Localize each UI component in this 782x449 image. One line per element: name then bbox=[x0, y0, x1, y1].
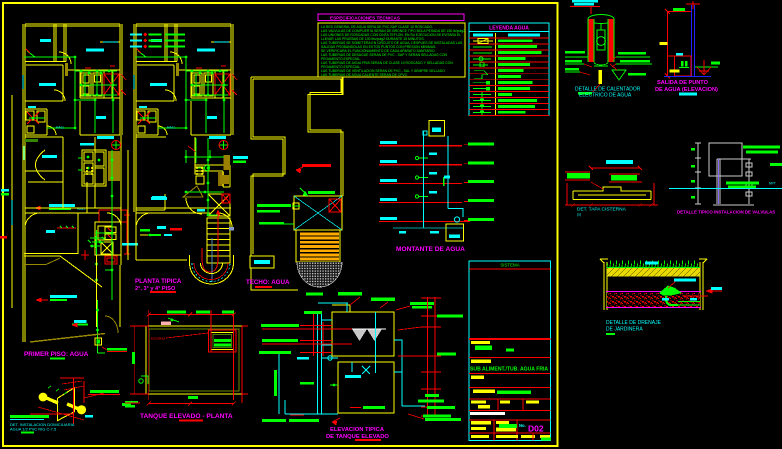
svg-text:NPT: NPT bbox=[769, 182, 776, 186]
svg-text:DE JARDINERA: DE JARDINERA bbox=[606, 327, 643, 333]
svg-text:DET. TAPA CISTERNA: DET. TAPA CISTERNA bbox=[577, 207, 627, 213]
svg-text:LAS TUBERIAS DE AGUA CALIENTE: LAS TUBERIAS DE AGUA CALIENTE SERAN DE C… bbox=[321, 73, 408, 77]
svg-text:ELEVACION TIPICA: ELEVACION TIPICA bbox=[330, 427, 385, 433]
svg-text:D02: D02 bbox=[528, 424, 544, 434]
svg-text:(s): (s) bbox=[577, 213, 581, 217]
svg-text:ESPECIFICACIONES TECNICAS: ESPECIFICACIONES TECNICAS bbox=[330, 15, 400, 20]
svg-text:AGUA 1/2 PVC RIG C-7.5: AGUA 1/2 PVC RIG C-7.5 bbox=[10, 427, 57, 432]
svg-text:TECHO: AGUA: TECHO: AGUA bbox=[246, 279, 290, 286]
svg-text:PLANTA TIPICA: PLANTA TIPICA bbox=[135, 278, 182, 285]
svg-text:PRIMER PISO: AGUA: PRIMER PISO: AGUA bbox=[24, 351, 89, 358]
svg-text:DETALLE TIPICO INSTALACION DE: DETALLE TIPICO INSTALACION DE VALVULAS bbox=[677, 210, 775, 215]
svg-text:SUB ALIMENT./TUB. AGUA FRIA: SUB ALIMENT./TUB. AGUA FRIA bbox=[470, 367, 548, 373]
svg-text:ELECTRICO DE AGUA: ELECTRICO DE AGUA bbox=[579, 93, 632, 99]
svg-text:DETALLE DE DRENAJE: DETALLE DE DRENAJE bbox=[606, 320, 662, 326]
svg-text:No.: No. bbox=[519, 423, 526, 428]
svg-text:MONTANTE DE AGUA: MONTANTE DE AGUA bbox=[396, 246, 465, 253]
svg-text:Escalera: Escalera bbox=[151, 337, 165, 341]
svg-text:TANQUE ELEVADO - PLANTA: TANQUE ELEVADO - PLANTA bbox=[140, 413, 233, 420]
svg-text:SISTEMA: SISTEMA bbox=[500, 263, 519, 268]
svg-text:DE AGUA (ELEVACION): DE AGUA (ELEVACION) bbox=[655, 87, 718, 93]
svg-text:LEYENDA AGUA: LEYENDA AGUA bbox=[489, 26, 529, 32]
svg-text:SALIDA DE PUNTO: SALIDA DE PUNTO bbox=[657, 80, 709, 86]
